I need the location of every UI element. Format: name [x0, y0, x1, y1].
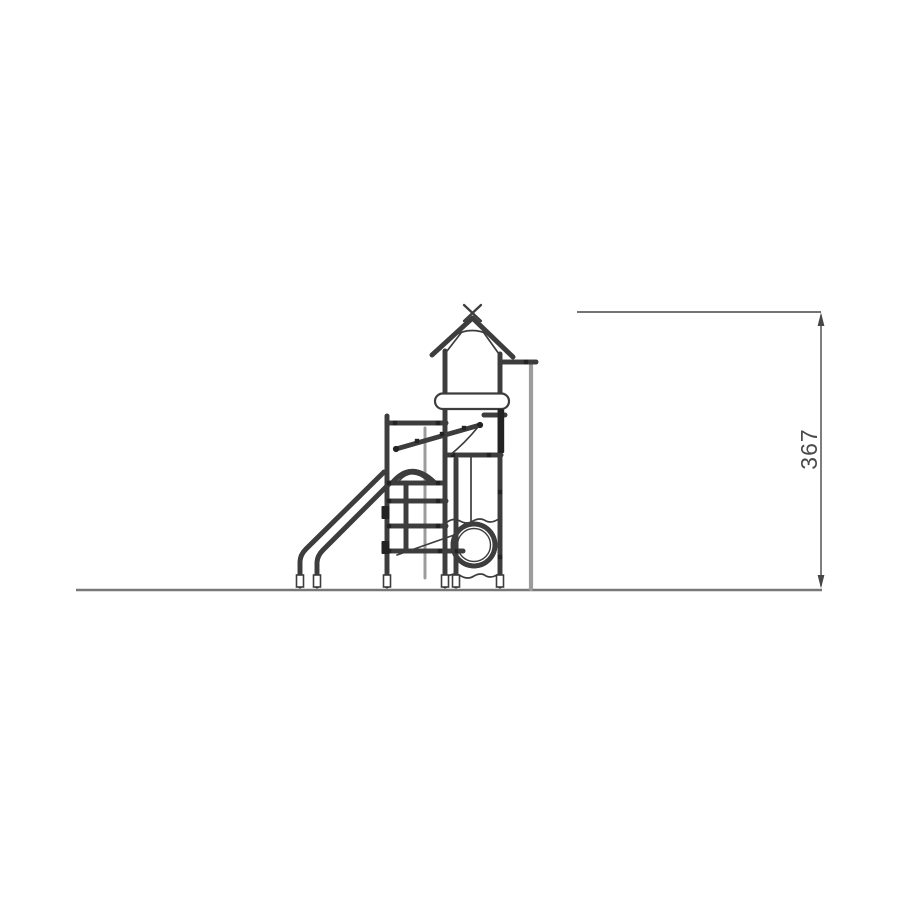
tower-bumper-band: [435, 394, 509, 410]
post-foot: [314, 575, 321, 587]
post-foot: [442, 575, 449, 587]
dimension-label: 367: [796, 428, 822, 469]
technical-drawing: 367: [0, 0, 900, 900]
line-details: [397, 305, 500, 578]
height-dimension: 367: [577, 312, 824, 589]
tunnel-ring-inner: [458, 529, 491, 562]
post-foot: [297, 575, 304, 587]
post-foot: [497, 575, 504, 587]
drawing-canvas: 367: [0, 0, 900, 900]
post-clamp-band: [498, 409, 505, 453]
stair-handrail-inner: [317, 483, 390, 586]
panel-clamp-upper: [382, 506, 390, 519]
post-foot: [384, 575, 391, 587]
dimension-arrow-up-icon: [818, 313, 825, 327]
rail-knob-left: [393, 446, 399, 452]
post-foot: [453, 575, 460, 587]
dimension-arrow-down-icon: [818, 575, 825, 589]
